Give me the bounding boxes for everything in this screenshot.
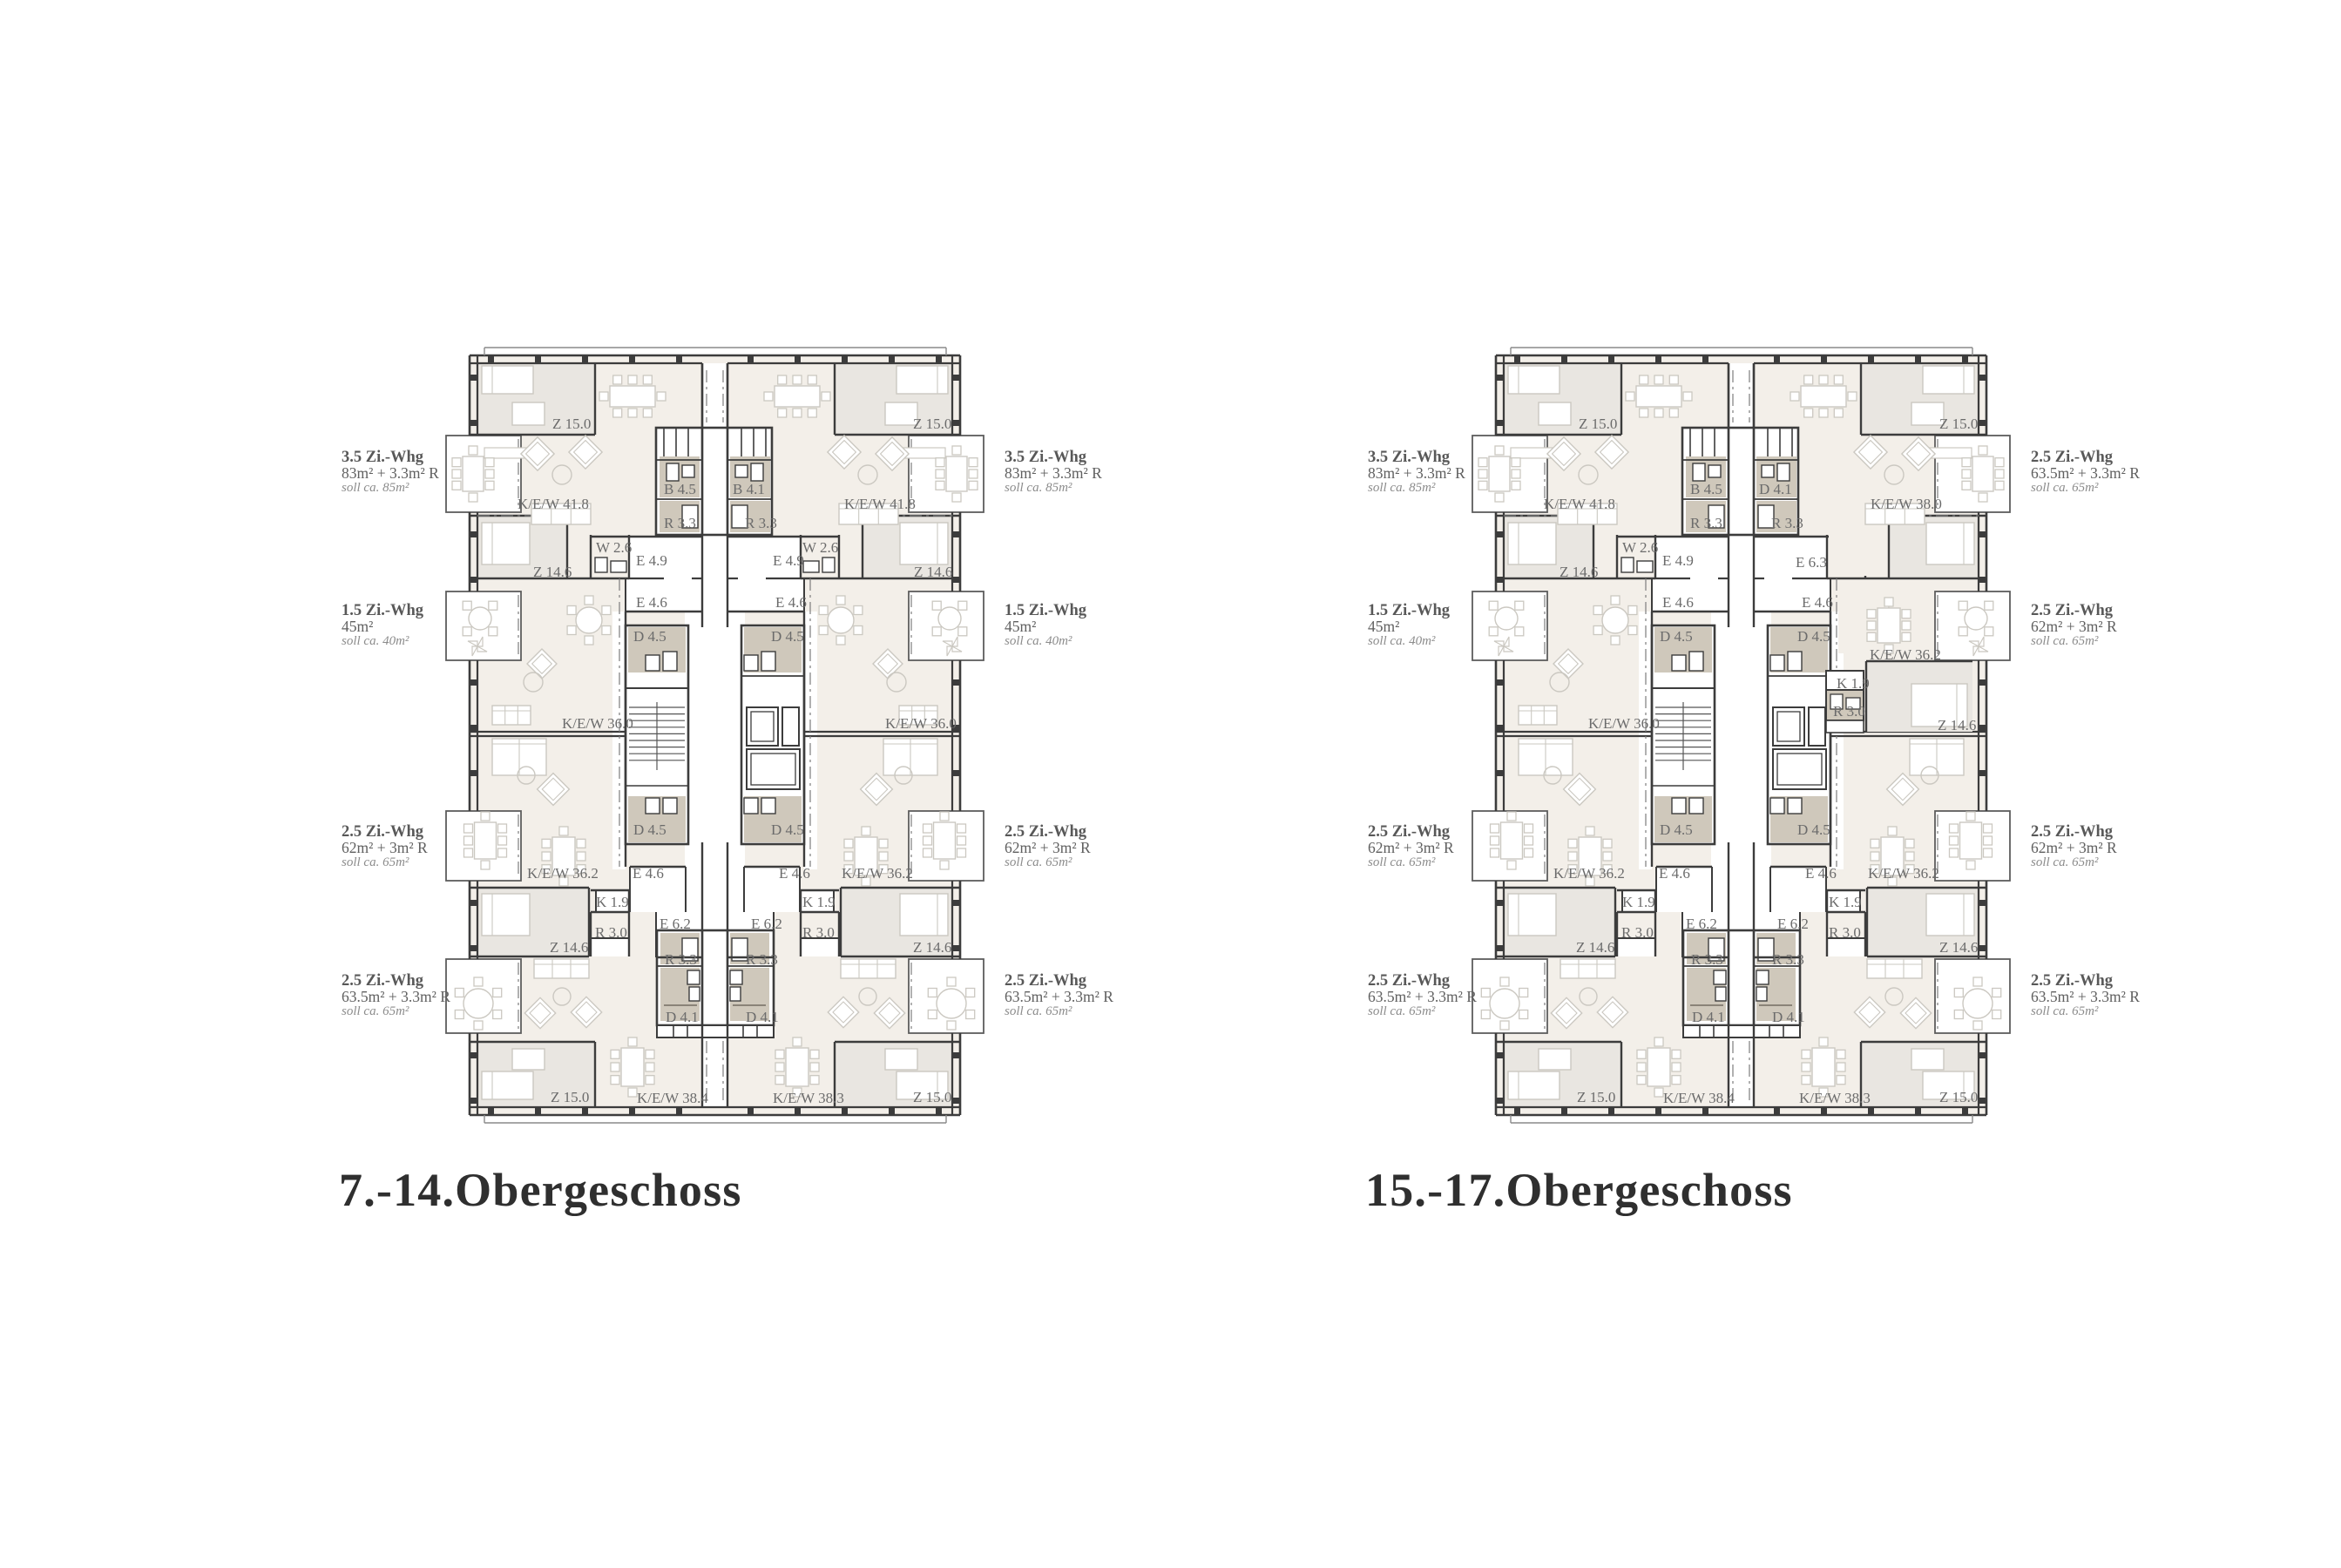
svg-text:Z 15.0: Z 15.0	[1579, 416, 1617, 432]
svg-text:K/E/W 38.0: K/E/W 38.0	[1871, 496, 1942, 512]
svg-text:15.-17.Obergeschoss: 15.-17.Obergeschoss	[1365, 1164, 1793, 1216]
svg-text:K 1.9: K 1.9	[596, 894, 629, 910]
svg-text:D 4.5: D 4.5	[1660, 628, 1693, 645]
svg-text:Z 14.6: Z 14.6	[1560, 564, 1598, 580]
svg-text:2.5 Zi.-Whg: 2.5 Zi.-Whg	[2031, 823, 2114, 841]
svg-text:7.-14.Obergeschoss: 7.-14.Obergeschoss	[339, 1164, 742, 1216]
svg-text:K/E/W 38.3: K/E/W 38.3	[1799, 1090, 1871, 1106]
svg-text:Z 14.6: Z 14.6	[1939, 939, 1978, 956]
svg-text:R 3.3: R 3.3	[1771, 515, 1803, 531]
svg-text:soll ca. 65m²: soll ca. 65m²	[2031, 634, 2099, 648]
svg-text:62m² + 3m² R: 62m² + 3m² R	[1368, 839, 1454, 856]
svg-text:R 3.3: R 3.3	[1690, 515, 1722, 531]
svg-text:soll ca. 65m²: soll ca. 65m²	[2031, 1004, 2099, 1018]
svg-text:E 6.3: E 6.3	[1796, 554, 1827, 571]
svg-text:E 6.2: E 6.2	[1777, 916, 1809, 932]
svg-text:2.5 Zi.-Whg: 2.5 Zi.-Whg	[1368, 823, 1451, 841]
svg-text:E 4.6: E 4.6	[775, 594, 807, 611]
svg-text:R 3.3: R 3.3	[1772, 951, 1804, 968]
svg-text:W 2.6: W 2.6	[1622, 539, 1658, 556]
svg-text:R 3.3: R 3.3	[664, 515, 696, 531]
svg-text:Z 15.0: Z 15.0	[1939, 416, 1978, 432]
svg-text:2.5 Zi.-Whg: 2.5 Zi.-Whg	[2031, 972, 2114, 990]
svg-text:K/E/W 41.8: K/E/W 41.8	[844, 496, 916, 512]
svg-text:Z 15.0: Z 15.0	[552, 416, 591, 432]
svg-text:E 4.9: E 4.9	[636, 552, 667, 569]
svg-text:K/E/W 36.2: K/E/W 36.2	[1868, 865, 1939, 882]
svg-text:soll ca. 65m²: soll ca. 65m²	[1368, 1004, 1436, 1018]
svg-text:D 4.5: D 4.5	[771, 821, 804, 838]
svg-text:1.5 Zi.-Whg: 1.5 Zi.-Whg	[1005, 602, 1087, 619]
svg-text:Z 14.6: Z 14.6	[550, 939, 588, 956]
svg-text:R 3.0: R 3.0	[1621, 924, 1654, 941]
svg-text:63.5m² + 3.3m² R: 63.5m² + 3.3m² R	[1368, 988, 1477, 1005]
svg-text:R 3.0: R 3.0	[595, 924, 627, 941]
svg-text:83m² + 3.3m² R: 83m² + 3.3m² R	[342, 464, 439, 482]
svg-text:B 4.5: B 4.5	[1690, 481, 1722, 497]
svg-text:2.5 Zi.-Whg: 2.5 Zi.-Whg	[1005, 823, 1087, 841]
svg-text:E 4.6: E 4.6	[1659, 865, 1690, 882]
svg-text:K/E/W 36.2: K/E/W 36.2	[527, 865, 599, 882]
svg-text:Z 15.0: Z 15.0	[551, 1089, 589, 1105]
svg-text:E 6.2: E 6.2	[660, 916, 691, 932]
svg-text:E 4.6: E 4.6	[633, 865, 664, 882]
svg-text:D 4.5: D 4.5	[1797, 821, 1830, 838]
svg-text:B 4.1: B 4.1	[733, 481, 765, 497]
svg-text:62m² + 3m² R: 62m² + 3m² R	[342, 839, 428, 856]
svg-text:K/E/W 38.4: K/E/W 38.4	[637, 1090, 708, 1106]
svg-text:63.5m² + 3.3m² R: 63.5m² + 3.3m² R	[342, 988, 450, 1005]
svg-text:B 4.5: B 4.5	[664, 481, 696, 497]
svg-text:W 2.6: W 2.6	[802, 539, 838, 556]
svg-text:Z 15.0: Z 15.0	[1577, 1089, 1615, 1105]
svg-text:K 1.9: K 1.9	[1829, 894, 1862, 910]
svg-text:E 4.9: E 4.9	[1662, 552, 1694, 569]
svg-text:Z 14.6: Z 14.6	[533, 564, 572, 580]
svg-text:soll ca. 40m²: soll ca. 40m²	[1005, 634, 1072, 648]
svg-text:K/E/W 41.8: K/E/W 41.8	[518, 496, 589, 512]
svg-text:D 4.5: D 4.5	[771, 628, 804, 645]
svg-text:E 6.2: E 6.2	[751, 916, 782, 932]
svg-text:R 3.3: R 3.3	[1691, 951, 1723, 968]
svg-text:2.5 Zi.-Whg: 2.5 Zi.-Whg	[1368, 972, 1451, 990]
svg-text:D 4.5: D 4.5	[1797, 628, 1830, 645]
svg-text:K/E/W 36.0: K/E/W 36.0	[562, 715, 633, 732]
svg-text:soll ca. 85m²: soll ca. 85m²	[342, 481, 409, 495]
svg-text:1.5 Zi.-Whg: 1.5 Zi.-Whg	[342, 602, 424, 619]
svg-text:Z 15.0: Z 15.0	[913, 1089, 951, 1105]
svg-text:K/E/W 36.2: K/E/W 36.2	[1870, 646, 1941, 663]
svg-text:D 4.1: D 4.1	[1692, 1009, 1725, 1025]
svg-text:62m² + 3m² R: 62m² + 3m² R	[1005, 839, 1091, 856]
svg-text:2.5 Zi.-Whg: 2.5 Zi.-Whg	[342, 823, 424, 841]
svg-text:R 3.3: R 3.3	[746, 951, 778, 968]
svg-text:83m² + 3.3m² R: 83m² + 3.3m² R	[1005, 464, 1102, 482]
svg-text:soll ca. 85m²: soll ca. 85m²	[1368, 481, 1436, 495]
svg-text:E 4.6: E 4.6	[1662, 594, 1694, 611]
svg-text:soll ca. 65m²: soll ca. 65m²	[2031, 481, 2099, 495]
svg-text:E 4.6: E 4.6	[1802, 594, 1833, 611]
svg-text:soll ca. 65m²: soll ca. 65m²	[342, 1004, 409, 1018]
svg-text:K/E/W 36.2: K/E/W 36.2	[1553, 865, 1625, 882]
svg-text:soll ca. 65m²: soll ca. 65m²	[2031, 855, 2099, 869]
svg-text:K 1.9: K 1.9	[1622, 894, 1655, 910]
svg-text:R 3.0: R 3.0	[1833, 703, 1865, 720]
svg-text:soll ca. 40m²: soll ca. 40m²	[1368, 634, 1436, 648]
svg-text:K/E/W 41.8: K/E/W 41.8	[1544, 496, 1615, 512]
svg-text:63.5m² + 3.3m² R: 63.5m² + 3.3m² R	[2031, 988, 2140, 1005]
svg-text:soll ca. 65m²: soll ca. 65m²	[1368, 855, 1436, 869]
svg-text:soll ca. 85m²: soll ca. 85m²	[1005, 481, 1072, 495]
svg-text:K/E/W 36.2: K/E/W 36.2	[842, 865, 913, 882]
svg-text:45m²: 45m²	[1005, 618, 1036, 635]
svg-text:D 4.1: D 4.1	[666, 1009, 699, 1025]
svg-text:D 4.1: D 4.1	[1759, 481, 1792, 497]
svg-text:D 4.1: D 4.1	[1772, 1009, 1805, 1025]
svg-text:Z 14.6: Z 14.6	[1938, 717, 1976, 733]
svg-text:1.5 Zi.-Whg: 1.5 Zi.-Whg	[1368, 602, 1451, 619]
svg-text:D 4.5: D 4.5	[1660, 821, 1693, 838]
svg-text:63.5m² + 3.3m² R: 63.5m² + 3.3m² R	[1005, 988, 1113, 1005]
svg-text:Z 15.0: Z 15.0	[913, 416, 951, 432]
svg-text:K 1.9: K 1.9	[802, 894, 836, 910]
svg-text:62m² + 3m² R: 62m² + 3m² R	[2031, 618, 2117, 635]
svg-text:W 2.6: W 2.6	[596, 539, 632, 556]
svg-text:K/E/W 38.4: K/E/W 38.4	[1663, 1090, 1735, 1106]
svg-text:soll ca. 40m²: soll ca. 40m²	[342, 634, 409, 648]
svg-text:E 4.6: E 4.6	[1805, 865, 1837, 882]
svg-text:45m²: 45m²	[1368, 618, 1399, 635]
svg-text:R 3.3: R 3.3	[745, 515, 777, 531]
svg-text:E 6.2: E 6.2	[1686, 916, 1717, 932]
svg-text:K/E/W 36.0: K/E/W 36.0	[1588, 715, 1660, 732]
svg-text:soll ca. 65m²: soll ca. 65m²	[1005, 1004, 1072, 1018]
svg-text:45m²: 45m²	[342, 618, 373, 635]
svg-text:63.5m² + 3.3m² R: 63.5m² + 3.3m² R	[2031, 464, 2140, 482]
svg-text:Z 14.6: Z 14.6	[1576, 939, 1614, 956]
svg-text:83m² + 3.3m² R: 83m² + 3.3m² R	[1368, 464, 1465, 482]
svg-text:3.5 Zi.-Whg: 3.5 Zi.-Whg	[1368, 449, 1451, 466]
svg-text:3.5 Zi.-Whg: 3.5 Zi.-Whg	[342, 449, 424, 466]
svg-text:R 3.0: R 3.0	[802, 924, 835, 941]
svg-text:2.5 Zi.-Whg: 2.5 Zi.-Whg	[342, 972, 424, 990]
svg-text:K 1.9: K 1.9	[1837, 675, 1870, 692]
svg-text:K/E/W 36.0: K/E/W 36.0	[885, 715, 957, 732]
svg-text:62m² + 3m² R: 62m² + 3m² R	[2031, 839, 2117, 856]
svg-text:soll ca. 65m²: soll ca. 65m²	[1005, 855, 1072, 869]
svg-text:D 4.5: D 4.5	[633, 821, 666, 838]
svg-text:E 4.6: E 4.6	[636, 594, 667, 611]
svg-text:2.5 Zi.-Whg: 2.5 Zi.-Whg	[1005, 972, 1087, 990]
svg-text:E 4.9: E 4.9	[773, 552, 804, 569]
svg-text:2.5 Zi.-Whg: 2.5 Zi.-Whg	[2031, 602, 2114, 619]
svg-text:Z 15.0: Z 15.0	[1939, 1089, 1978, 1105]
svg-text:Z 14.6: Z 14.6	[914, 564, 952, 580]
svg-text:E 4.6: E 4.6	[779, 865, 810, 882]
svg-text:D 4.5: D 4.5	[633, 628, 666, 645]
svg-text:Z 14.6: Z 14.6	[913, 939, 951, 956]
svg-text:3.5 Zi.-Whg: 3.5 Zi.-Whg	[1005, 449, 1087, 466]
svg-text:2.5 Zi.-Whg: 2.5 Zi.-Whg	[2031, 449, 2114, 466]
svg-text:soll ca. 65m²: soll ca. 65m²	[342, 855, 409, 869]
svg-text:R 3.0: R 3.0	[1829, 924, 1861, 941]
svg-text:D 4.1: D 4.1	[746, 1009, 779, 1025]
svg-text:K/E/W 38.3: K/E/W 38.3	[773, 1090, 844, 1106]
svg-text:R 3.3: R 3.3	[665, 951, 697, 968]
